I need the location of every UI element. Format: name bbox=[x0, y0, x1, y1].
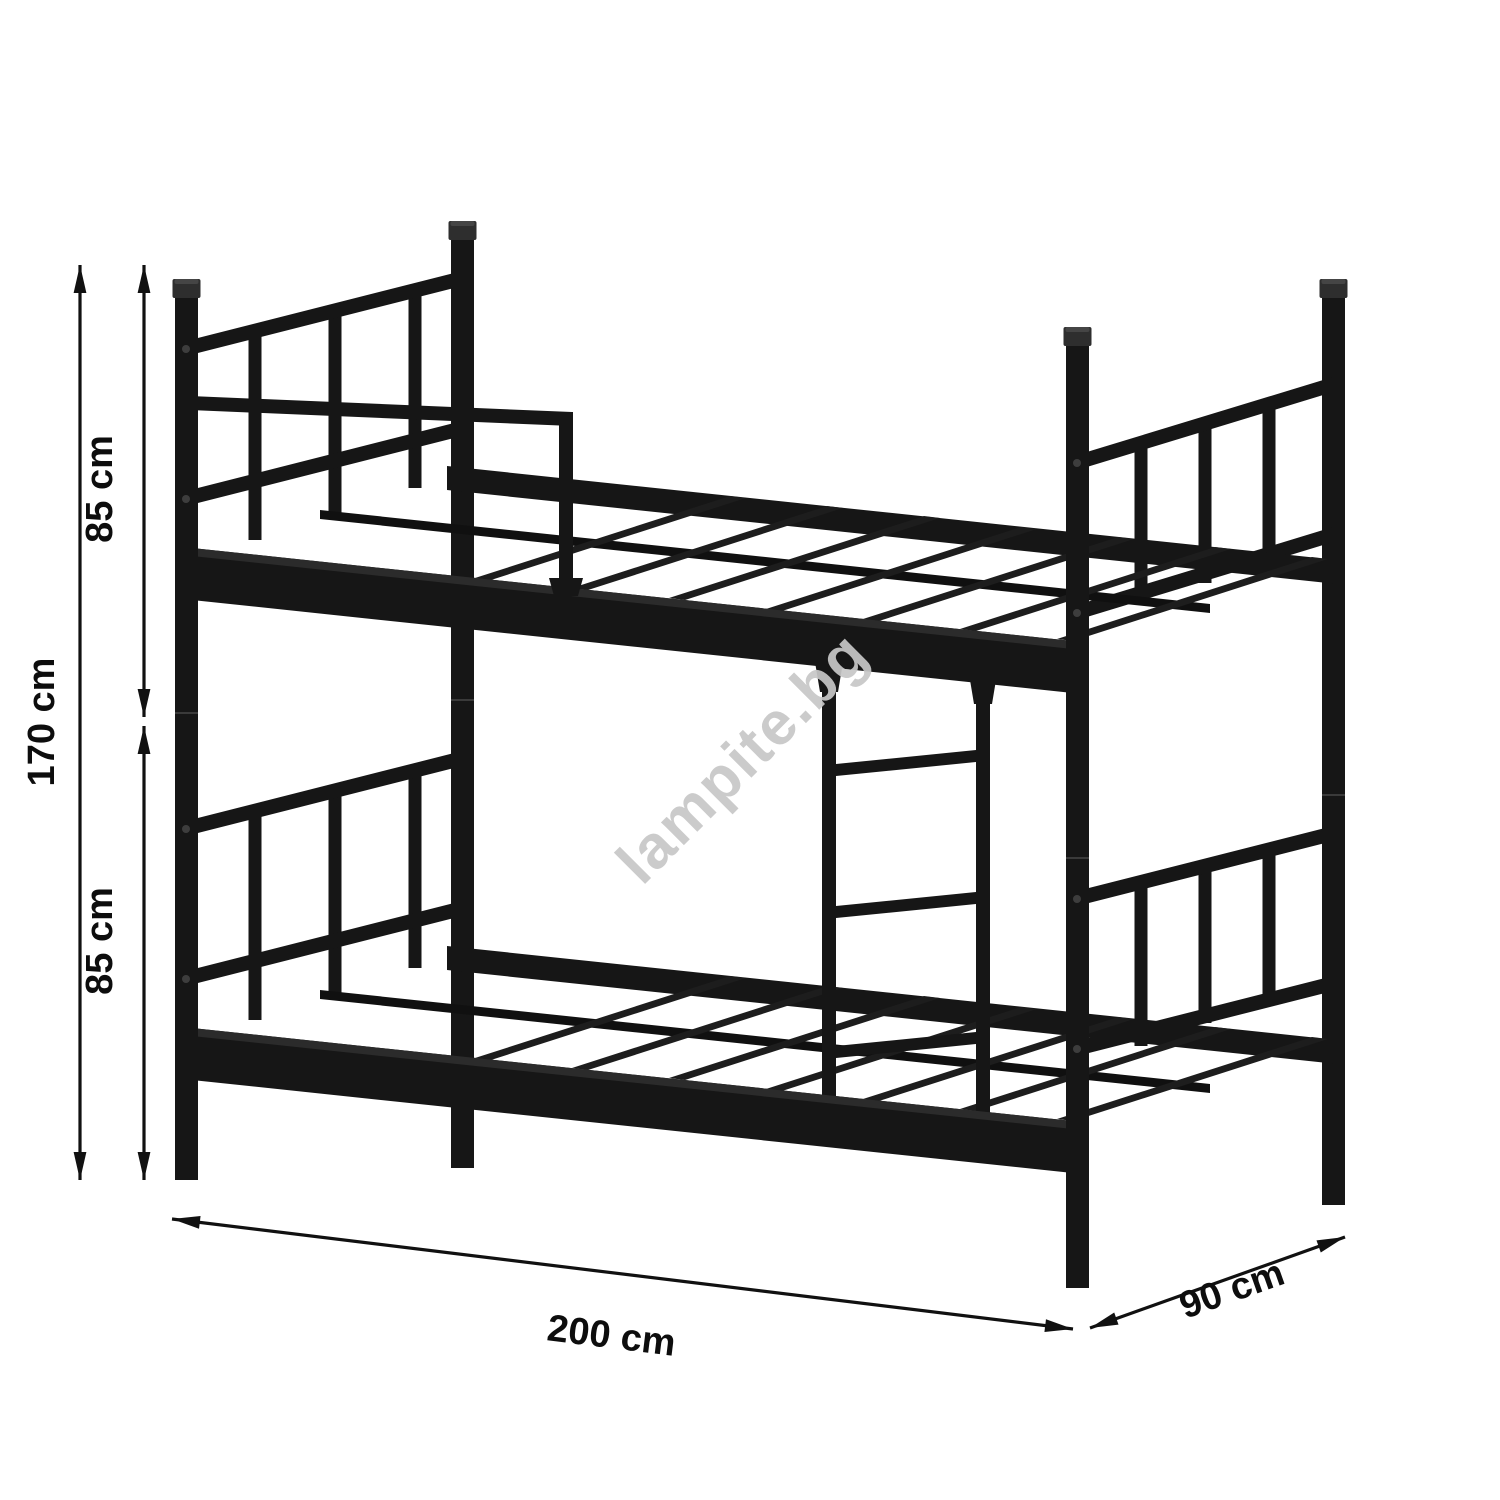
depth-label: 90 cm bbox=[1174, 1252, 1290, 1328]
bunk-bed-dimension-diagram: 170 cm 85 cm 85 cm 200 cm 90 cm lampite.… bbox=[0, 0, 1500, 1500]
foot-far-post bbox=[1320, 279, 1348, 1205]
ladder bbox=[814, 656, 998, 1150]
upper-height-label: 85 cm bbox=[79, 435, 121, 543]
foot-near-post bbox=[1064, 327, 1092, 1288]
watermark-text: lampite.bg bbox=[603, 618, 881, 896]
lower-height-label: 85 cm bbox=[79, 887, 121, 995]
total-height-label: 170 cm bbox=[21, 658, 63, 787]
headboard-lower-panel bbox=[186, 751, 462, 1020]
length-label: 200 cm bbox=[545, 1307, 678, 1364]
length-dimension-line bbox=[172, 1219, 1073, 1329]
head-near-post bbox=[173, 279, 201, 1180]
diagram-canvas: 170 cm 85 cm 85 cm 200 cm 90 cm lampite.… bbox=[0, 0, 1500, 1500]
head-far-post bbox=[449, 221, 477, 1168]
